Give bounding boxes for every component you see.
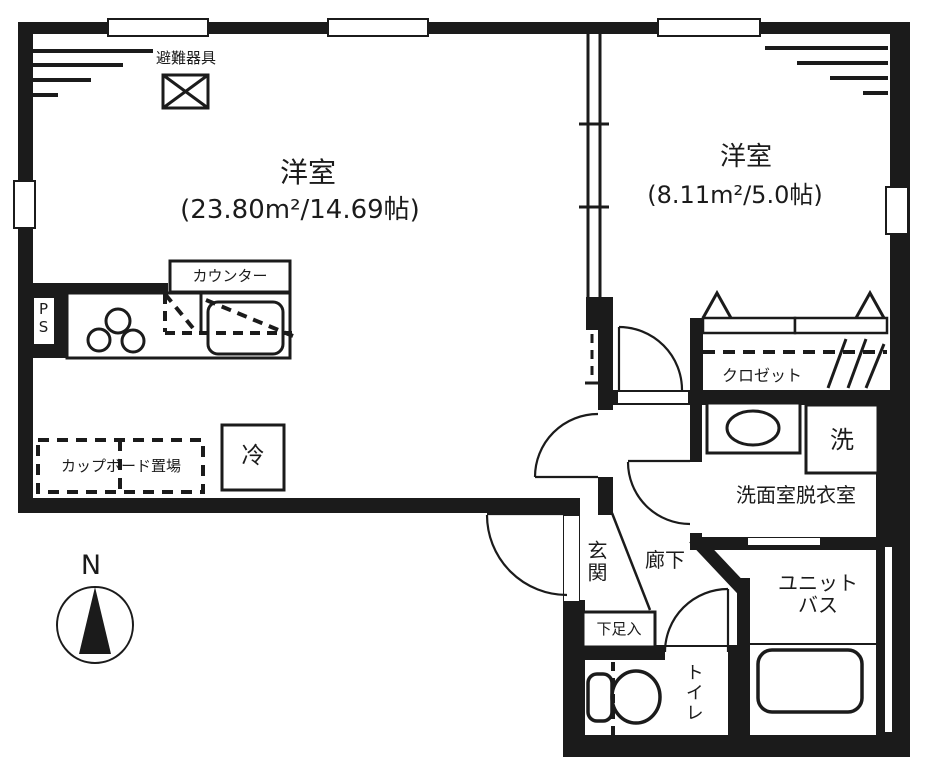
toilet-label: トイレ	[683, 663, 703, 723]
room-second-name: 洋室	[720, 143, 772, 172]
opening-living-door	[597, 410, 614, 477]
compass-icon	[57, 587, 133, 663]
opening-washroom-door	[689, 462, 703, 533]
opening-entrance-door	[564, 516, 579, 601]
opening-bath-door	[748, 538, 820, 545]
pipe-space-label: PS	[35, 300, 52, 336]
fridge-label: 冷	[242, 444, 265, 469]
closet-folding-doors	[703, 293, 887, 333]
eaves-hatch-top-left	[33, 51, 153, 95]
outer-walls	[18, 22, 910, 757]
wall-left	[18, 22, 33, 513]
wall-corridor-west	[598, 297, 613, 515]
counter-label: カウンター	[192, 268, 267, 285]
room-main-name: 洋室	[280, 158, 336, 189]
wash-basin-icon	[727, 411, 779, 445]
bedroom-door	[619, 327, 682, 390]
window-top-3	[658, 19, 760, 36]
opening-bedroom-door	[618, 392, 688, 403]
window-top-1	[108, 19, 208, 36]
evacuation-label: 避難器具	[156, 50, 216, 67]
room-main-area: (23.80m²/14.69帖)	[180, 196, 420, 225]
wall-main-bottom	[18, 498, 580, 513]
living-room-door	[535, 414, 598, 477]
entrance-door	[487, 514, 567, 595]
window-left	[14, 181, 35, 228]
cupboard-label: カップボード置場	[61, 458, 181, 475]
toilet-door	[665, 589, 728, 652]
closet-label: クロゼット	[722, 367, 802, 385]
washer-label: 洗	[830, 427, 854, 453]
shoe-box-label: 下足入	[596, 621, 641, 638]
window-right	[886, 187, 908, 234]
bath-right-channel	[885, 547, 892, 732]
compass-n-label: N	[81, 551, 101, 581]
window-top-2	[328, 19, 428, 36]
room-second-area: (8.11m²/5.0帖)	[647, 182, 822, 208]
unit-bath-label: ユニットバス	[772, 572, 864, 616]
eaves-hatch-top-right	[765, 48, 888, 93]
hallway-label: 廊下	[645, 549, 685, 571]
genkan-label: 玄関	[585, 540, 607, 584]
washroom-label: 洗面室脱衣室	[736, 484, 856, 506]
wall-right	[890, 22, 910, 757]
floor-plan: 避難器具 洋室 (23.80m²/14.69帖) 洋室 (8.11m²/5.0帖…	[0, 0, 925, 769]
opening-toilet-door	[665, 647, 728, 660]
wall-toilet-right	[728, 645, 750, 757]
closet-hanger-marks	[828, 339, 884, 388]
evacuation-equipment-icon	[163, 75, 208, 108]
sliding-partition	[579, 34, 609, 297]
toilet-icon	[588, 671, 660, 723]
washroom-door	[628, 461, 690, 524]
bathtub-icon	[758, 650, 862, 712]
